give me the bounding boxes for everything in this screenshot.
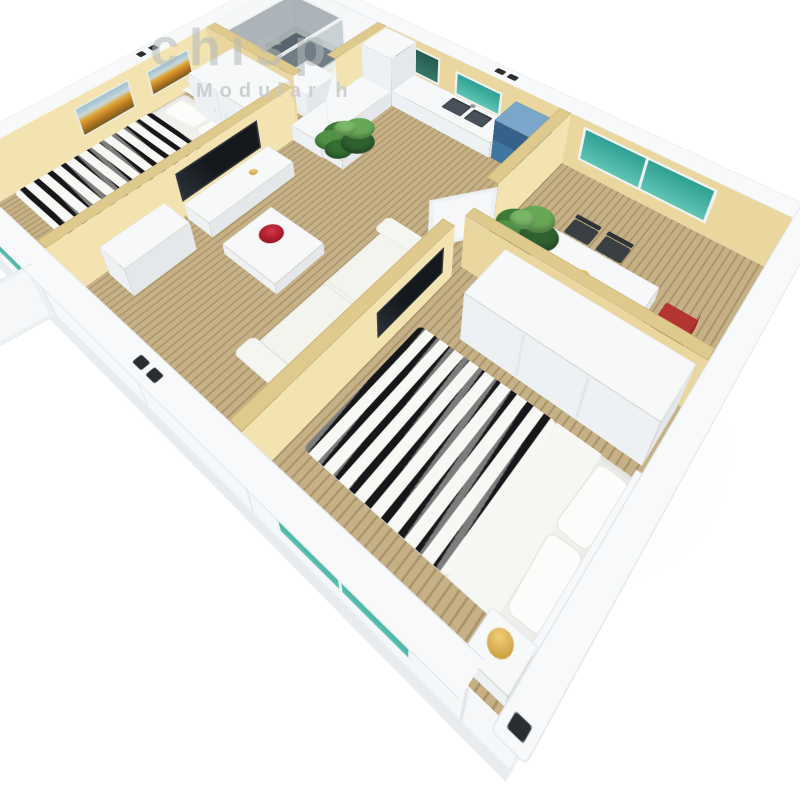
scene-stage (0, 0, 800, 800)
casting-sw-joint-2 (145, 367, 164, 384)
casting-ne-joint-2 (506, 74, 519, 81)
casting-nw-joint-1 (148, 45, 159, 51)
wardrobe2-seam-1 (515, 334, 525, 377)
wardrobe2-seam-2 (575, 376, 590, 419)
casting-sw-joint-1 (132, 354, 150, 370)
casting-nw-joint-2 (136, 51, 147, 57)
casting-ne-joint-1 (494, 68, 507, 75)
container-house-render: chisp Modular h (0, 0, 800, 800)
house-floorplan (0, 18, 792, 771)
wardrobe1-handle-1 (213, 106, 217, 113)
